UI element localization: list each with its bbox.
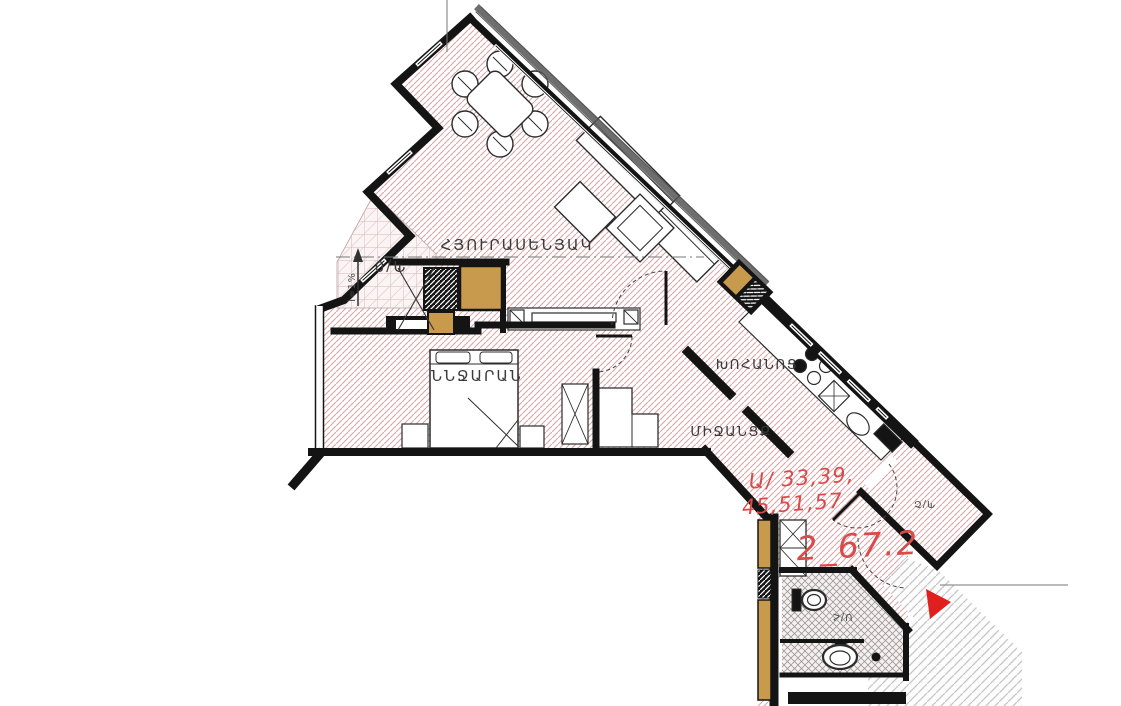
stove-burner xyxy=(808,372,821,385)
wall-bottom-bar xyxy=(788,692,906,704)
label-corridor: ՄԻՋԱՆՑՔ xyxy=(690,424,771,440)
nightstand-left xyxy=(402,424,428,448)
bed xyxy=(430,350,518,448)
vent-shaft xyxy=(424,268,458,310)
label-bedroom: ՆՆՋԱՐԱՆ xyxy=(431,367,523,385)
wood-strip-bottom xyxy=(758,600,771,700)
label-balcony-side: Պ/Շ xyxy=(913,498,935,509)
label-living-room: ՀՅՈՒՐԱՍԵՆՅԱԿ xyxy=(441,236,594,254)
label-bathroom: Ս/Հ xyxy=(832,611,853,622)
entry-shaft xyxy=(758,570,771,598)
outside-bottom-mask xyxy=(276,452,757,706)
outside-left-strip xyxy=(270,300,316,456)
wood-block-a xyxy=(460,266,502,310)
floor-plan-page: ՀՅՈՒՐԱՍԵՆՅԱԿ ՆՆՋԱՐԱՆ ԽՈՀԱՆՈՑ ՄԻՋԱՆՑՔ Ս/Հ… xyxy=(0,0,1121,706)
label-slope: i=1% xyxy=(347,272,358,302)
floor-drain xyxy=(872,653,881,662)
floor-fills xyxy=(270,0,1022,706)
wardrobe-bedroom xyxy=(562,384,588,444)
wood-strip-top xyxy=(758,520,771,568)
toilet xyxy=(792,589,826,611)
area-label: 2_67.2 xyxy=(795,523,920,568)
floor-plan-canvas: ՀՅՈՒՐԱՍԵՆՅԱԿ ՆՆՋԱՐԱՆ ԽՈՀԱՆՈՑ ՄԻՋԱՆՑՔ Ս/Հ… xyxy=(0,0,1121,706)
label-loggia-top: Պ/0 xyxy=(373,257,406,275)
wood-block-b xyxy=(428,312,454,334)
nightstand-right xyxy=(520,426,544,448)
label-kitchen: ԽՈՀԱՆՈՑ xyxy=(716,357,799,373)
